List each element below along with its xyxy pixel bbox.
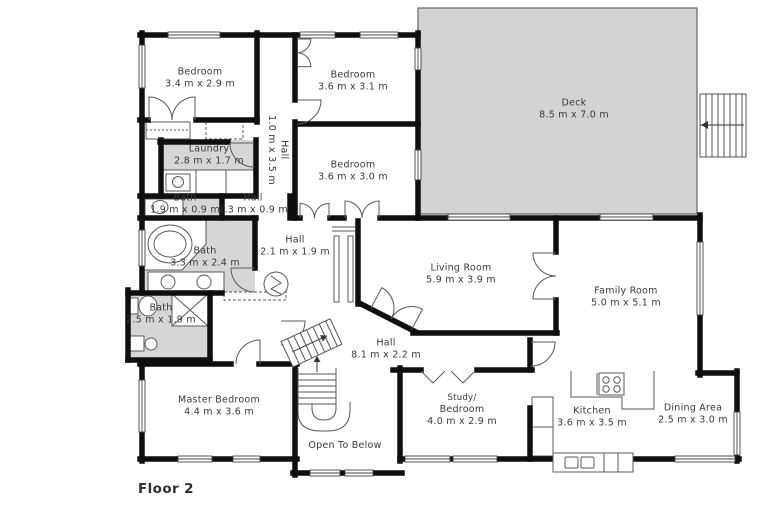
sliding-door	[448, 214, 510, 220]
window	[697, 242, 703, 315]
floor-plan-drawing	[0, 0, 768, 512]
window	[675, 456, 735, 462]
door-swing	[297, 100, 321, 124]
door-swing	[533, 253, 556, 299]
sink-icon-2	[130, 336, 157, 351]
sliding-door	[600, 214, 653, 220]
window	[233, 456, 260, 462]
stove-icon	[599, 373, 624, 395]
double-vanity-icon	[148, 272, 224, 292]
sink-icon	[145, 199, 183, 216]
window	[139, 380, 145, 432]
floor-plan: Bedroom3.4 m x 2.9 m Bedroom3.6 m x 3.1 …	[0, 0, 768, 512]
hall-closet-icon	[332, 227, 357, 302]
door-swing	[531, 342, 555, 366]
window	[415, 48, 421, 70]
door-swing	[236, 340, 260, 364]
window	[734, 412, 740, 455]
window	[405, 456, 450, 462]
window	[139, 230, 145, 266]
deck-staircase-icon	[700, 94, 746, 157]
washer-dryer-icon	[146, 122, 190, 139]
window	[310, 470, 340, 476]
closet-icon	[206, 122, 243, 139]
door-swing	[149, 97, 195, 120]
window	[360, 32, 398, 38]
window	[168, 32, 220, 38]
window	[415, 150, 421, 180]
door-swing	[297, 39, 311, 67]
bifold-door-icon	[421, 371, 475, 383]
window	[300, 32, 335, 38]
deck-area	[418, 8, 697, 214]
water-heater-icon	[264, 272, 288, 296]
window	[453, 456, 497, 462]
window	[178, 456, 212, 462]
kitchen-sink-icon	[553, 453, 633, 472]
door-swing	[345, 201, 379, 218]
laundry-sink-icon	[163, 170, 255, 194]
interior-staircase-icon	[281, 319, 350, 431]
shower-icon	[172, 294, 208, 326]
toilet-icon	[130, 296, 157, 316]
door-swing	[300, 204, 329, 218]
window	[345, 470, 373, 476]
floor-label: Floor 2	[138, 481, 194, 497]
window	[139, 45, 145, 88]
